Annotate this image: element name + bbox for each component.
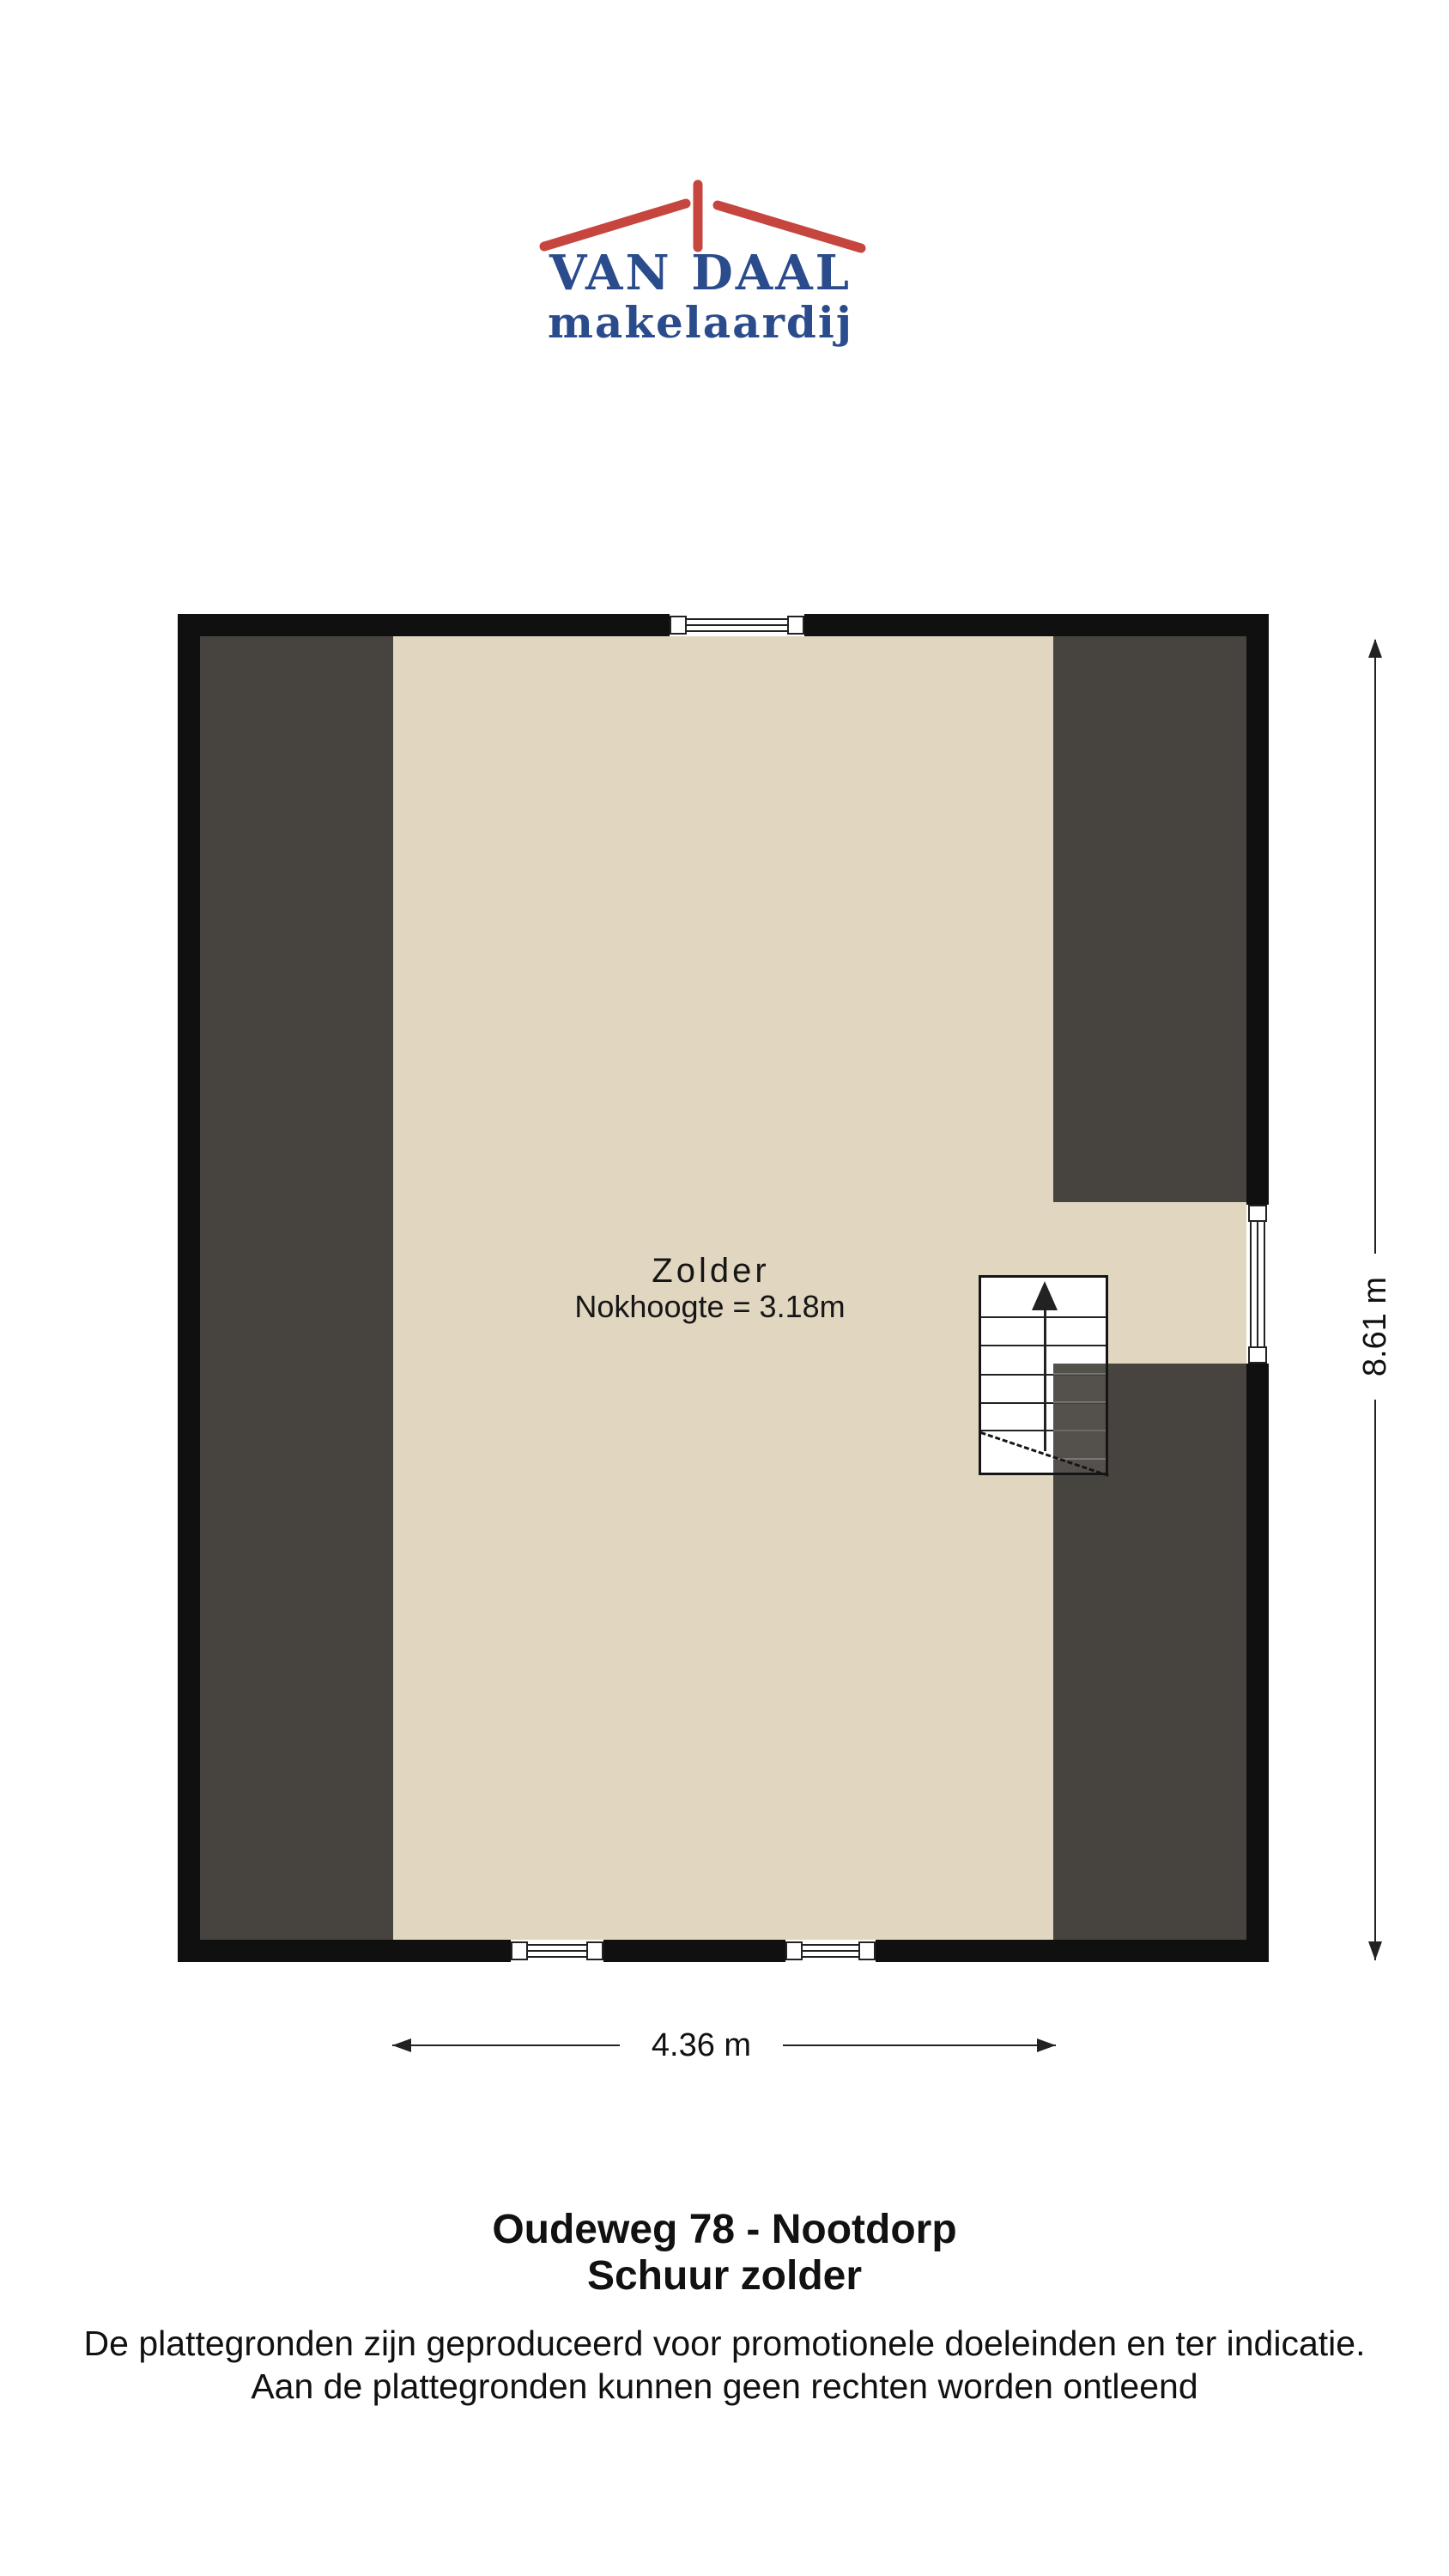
window-frame-cap (586, 1941, 603, 1960)
footer-floor-name: Schuur zolder (0, 2253, 1449, 2300)
window-top-wall (670, 614, 804, 636)
dimension-arrow-left-icon (392, 2038, 411, 2052)
logo-subtitle: makelaardij (529, 301, 872, 344)
room-label: Zolder (539, 1252, 882, 1291)
dimension-arrow-up-icon (1368, 639, 1382, 658)
stairs-up-arrowhead-icon (1032, 1281, 1058, 1310)
stairs-up-arrow-icon (1044, 1307, 1046, 1451)
window-glass (1250, 1222, 1265, 1346)
window-frame-cap (787, 616, 804, 635)
window-frame-cap (1248, 1346, 1267, 1364)
window-bottom-wall-left (511, 1940, 603, 1962)
window-glass (803, 1944, 858, 1958)
width-dimension-label: 4.36 m (620, 2026, 783, 2065)
dimension-arrow-down-icon (1368, 1941, 1382, 1960)
staircase (979, 1275, 1108, 1475)
window-frame-cap (785, 1941, 803, 1960)
footer-address: Oudeweg 78 - Nootdorp (0, 2207, 1449, 2253)
ridge-height-label: Nokhoogte = 3.18m (495, 1289, 925, 1325)
height-dimension-label: 8.61 m (1355, 1254, 1395, 1400)
window-glass (528, 1944, 586, 1958)
window-frame-cap (670, 616, 687, 635)
window-right-wall (1246, 1205, 1269, 1364)
floorplan-page: VAN DAAL makelaardij (0, 0, 1449, 2576)
dimension-arrow-right-icon (1037, 2038, 1056, 2052)
window-frame-cap (511, 1941, 528, 1960)
window-frame-cap (858, 1941, 876, 1960)
logo-title: VAN DAAL (529, 249, 872, 297)
sloped-ceiling-left (200, 636, 393, 1940)
disclaimer-line-1: De plattegronden zijn geproduceerd voor … (0, 2322, 1449, 2365)
sloped-ceiling-right-upper (1053, 636, 1246, 1202)
window-bottom-wall-right (785, 1940, 876, 1962)
sloped-ceiling-over-stairs (1053, 1364, 1106, 1473)
window-glass (687, 618, 787, 632)
window-frame-cap (1248, 1205, 1267, 1222)
disclaimer-line-2: Aan de plattegronden kunnen geen rechten… (0, 2365, 1449, 2408)
